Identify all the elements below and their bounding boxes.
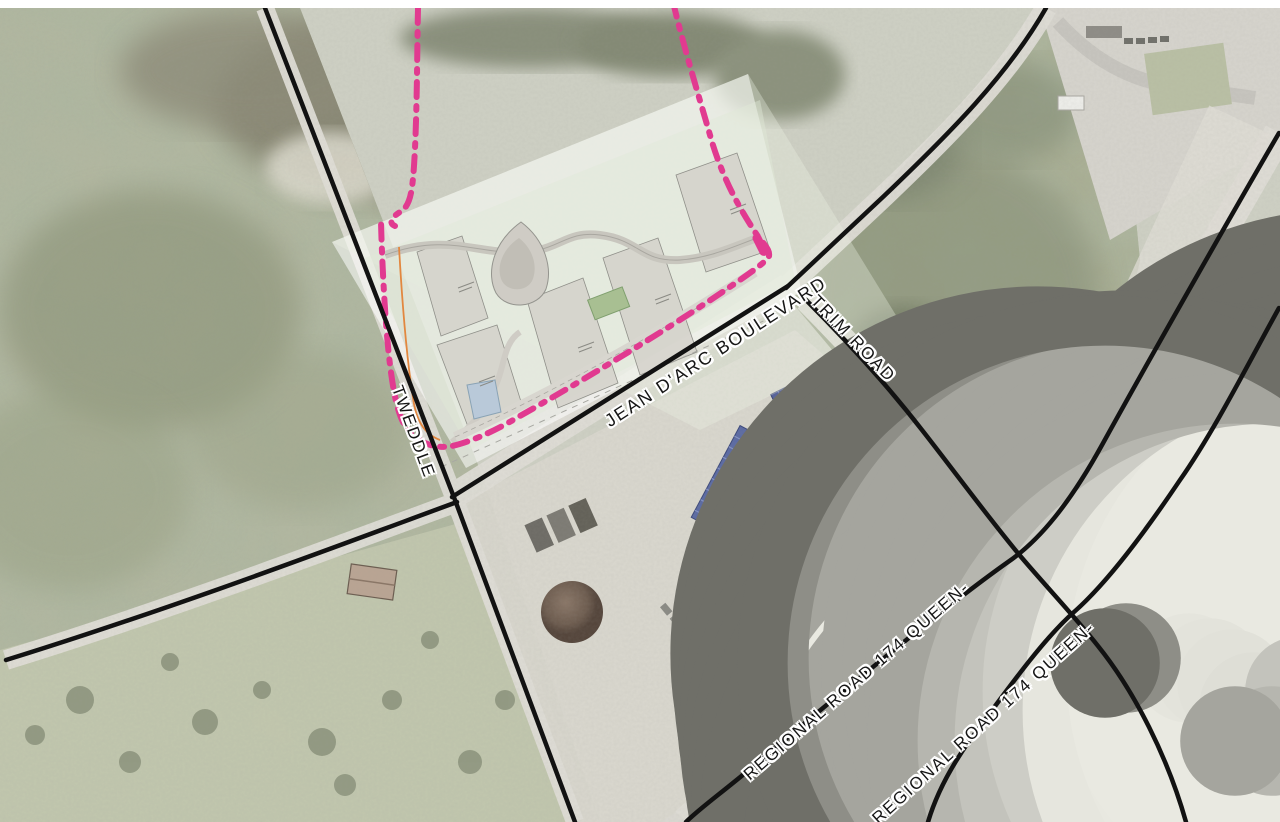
sheet-margin bbox=[0, 0, 1280, 8]
aerial-site-plan-map: TWEDDLE JEAN D'ARC BOULEVARD TRIM ROAD R… bbox=[0, 0, 1280, 822]
boundary-corner-marks bbox=[757, 238, 764, 252]
